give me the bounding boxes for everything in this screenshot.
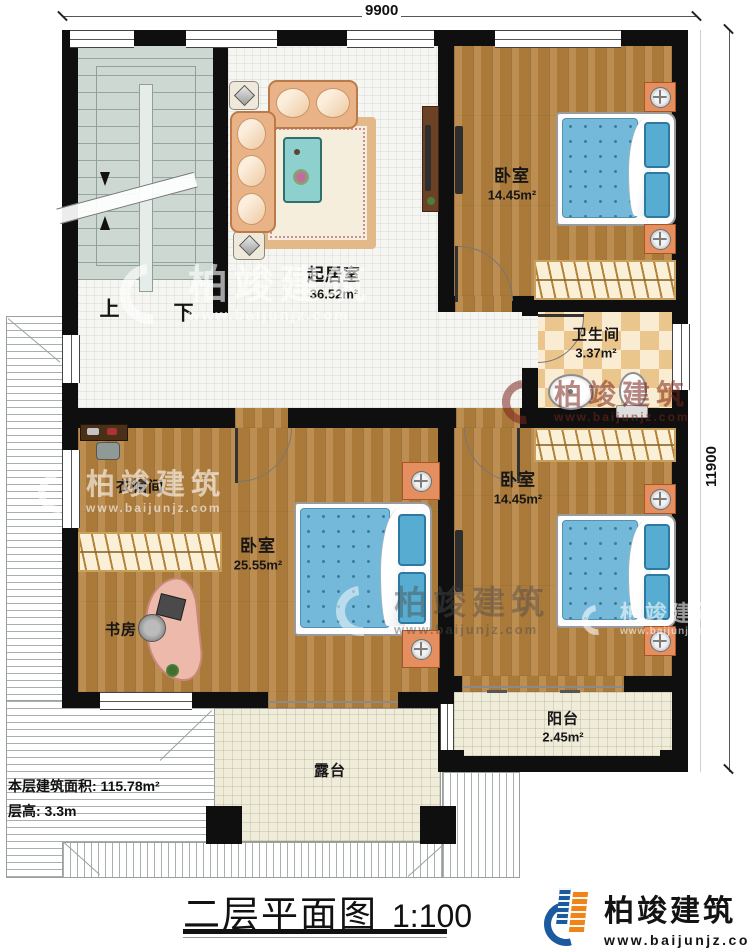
bed-quilt [300, 508, 390, 628]
table-flowers [293, 169, 309, 185]
toilet [616, 372, 646, 418]
bed [294, 502, 432, 636]
pillow [644, 122, 670, 168]
terrace-door-opening [268, 692, 398, 708]
stair-up-label: 上 [100, 293, 121, 322]
stair-direction-arrow [100, 172, 110, 186]
toilet-tank [616, 405, 648, 418]
lamp-icon [650, 631, 671, 652]
room-label-cloakroom: 衣帽间 [116, 476, 164, 497]
room-label-bedroom-top: 卧室14.45m² [488, 162, 536, 203]
wardrobe [78, 532, 222, 572]
title-underline-thick [183, 929, 447, 934]
bed [556, 112, 676, 226]
balcony-door-jamb [487, 690, 507, 693]
dimension-line-right [729, 30, 730, 772]
sofa-cushion [237, 193, 266, 225]
lamp-icon [650, 87, 671, 108]
lamp-icon [411, 639, 432, 660]
tv-icon [455, 126, 463, 194]
floorplan-canvas: 上 下 [0, 0, 750, 952]
corridor-floor-east [438, 312, 522, 408]
wall-corridor-south-c [520, 408, 688, 428]
roof-hatch-below-terrace [62, 842, 458, 878]
pillow [644, 574, 670, 620]
balcony-corner-pillar-left [438, 750, 464, 772]
nightstand [644, 626, 676, 656]
table-items [87, 428, 99, 435]
nightstand [402, 462, 440, 500]
balcony-door-jamb [560, 690, 580, 693]
office-chair [138, 614, 166, 642]
side-table-lamp [229, 81, 259, 110]
pillow [644, 524, 670, 570]
drain [568, 389, 573, 394]
window [186, 30, 277, 48]
lamp-icon [238, 235, 259, 256]
sofa-three-seat [230, 111, 276, 233]
company-logo-icon [544, 886, 596, 940]
pillow [398, 572, 426, 624]
terrace-pillar-right [420, 806, 456, 844]
room-label-terrace: 露台 [314, 760, 346, 781]
terrace-door-threshold [268, 701, 398, 703]
window [62, 450, 80, 528]
company-name: 柏竣建筑 [604, 886, 750, 930]
wardrobe [534, 260, 676, 300]
parapet-line-right [700, 30, 701, 772]
room-label-bedroom-right: 卧室14.45m² [494, 466, 542, 507]
sofa-cushion [276, 88, 310, 118]
terrace-pillar-left [206, 806, 242, 844]
nightstand [644, 82, 676, 112]
stool [96, 442, 120, 460]
room-label-balcony: 阳台2.45m² [542, 708, 583, 745]
bed [556, 514, 676, 628]
bed-quilt [562, 118, 638, 218]
floor-height-text: 层高: 3.3m [8, 799, 160, 824]
balcony-door-threshold [462, 686, 624, 688]
tv-icon [455, 530, 463, 592]
wall-balcony-south [438, 756, 688, 772]
sofa-cushion [316, 88, 350, 118]
sofa-two-seat [268, 80, 358, 129]
dimension-width-label: 9900 [362, 2, 401, 19]
sofa-cushion [237, 155, 266, 187]
balcony-railing [440, 704, 454, 750]
nightstand [644, 224, 676, 254]
lamp-icon [233, 85, 254, 106]
table-decor [294, 149, 300, 155]
stair-direction-arrow [100, 216, 110, 230]
bed-quilt [562, 520, 638, 620]
tv-icon [425, 125, 431, 191]
window [70, 30, 134, 48]
wall-balcony-north-a [438, 676, 462, 692]
sofa-cushion [237, 118, 266, 150]
company-url: www.baijunjz.com [604, 932, 750, 948]
company-logo: 柏竣建筑 www.baijunjz.com [544, 886, 750, 948]
pillow [398, 514, 426, 566]
window [62, 335, 80, 383]
plant-icon [427, 197, 435, 205]
sink [548, 374, 594, 410]
stair-down-label: 下 [174, 297, 195, 326]
balcony-corner-pillar-right [660, 750, 688, 772]
door-opening [235, 408, 288, 428]
room-label-bedroom-master: 卧室25.55m² [234, 532, 282, 573]
wall-master-bedroom-right [438, 428, 454, 692]
window [495, 30, 621, 48]
floor-info: 本层建筑面积: 115.78m² 层高: 3.3m [8, 774, 160, 824]
wall-balcony-north-b [624, 676, 688, 692]
tv-cabinet [422, 106, 439, 212]
room-label-living: 起居室36.52m² [307, 261, 361, 302]
coffee-table [283, 137, 322, 203]
window [672, 324, 690, 390]
side-table-lamp [233, 231, 265, 260]
pillow [644, 172, 670, 218]
lamp-icon [650, 229, 671, 250]
dressing-table [80, 424, 128, 441]
window [100, 692, 192, 710]
wardrobe [534, 428, 676, 462]
room-label-bathroom: 卫生间3.37m² [572, 324, 620, 361]
door-opening [456, 408, 520, 428]
wall-living-bedroom-top [438, 46, 454, 312]
nightstand [402, 630, 440, 668]
wall-corridor-south-b [288, 408, 456, 428]
floor-area-text: 本层建筑面积: 115.78m² [8, 774, 160, 799]
plant-icon [166, 664, 179, 677]
room-label-study: 书房 [105, 619, 137, 640]
title-underline-thin [183, 937, 447, 938]
wall-stair-living [213, 46, 228, 313]
table-items [107, 428, 117, 435]
dimension-height-label: 11900 [703, 443, 720, 490]
door-opening [522, 316, 538, 368]
lamp-icon [411, 471, 432, 492]
window [347, 30, 434, 48]
lamp-icon [650, 489, 671, 510]
toilet-bowl [619, 372, 647, 408]
nightstand [644, 484, 676, 514]
